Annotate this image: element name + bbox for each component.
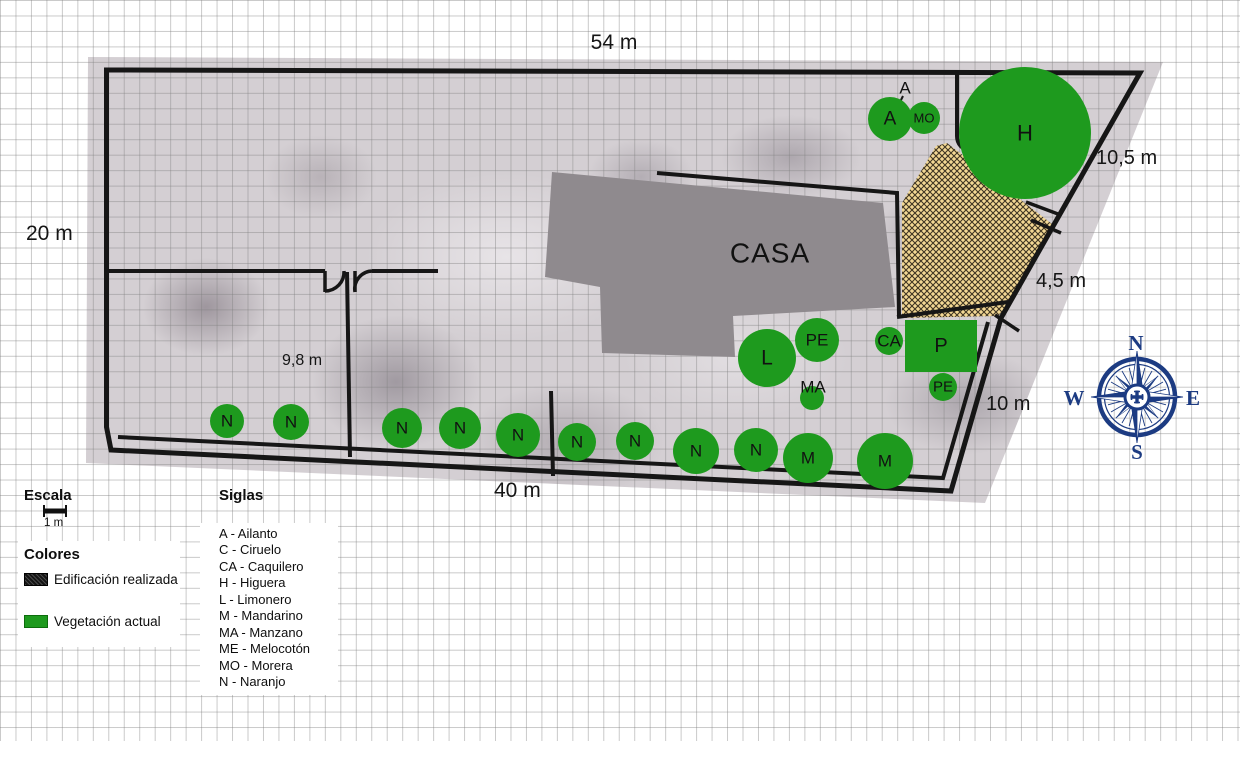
dimension-right-lower: 10 m — [986, 393, 1030, 416]
svg-text:MA: MA — [800, 378, 826, 397]
fence-vertical-mid — [551, 391, 553, 476]
compass-west-label: W — [1064, 386, 1085, 410]
svg-text:M: M — [878, 452, 892, 471]
tree-caquilero: CA — [875, 327, 903, 355]
svg-text:N: N — [454, 419, 466, 438]
house-footprint — [545, 172, 895, 357]
house-label: CASA — [730, 238, 810, 269]
compass-east-label: E — [1186, 386, 1200, 410]
tree-manzano: MA — [800, 378, 826, 411]
tree-naranjo: N — [496, 413, 540, 457]
dimension-right-upper: 10,5 m — [1096, 147, 1157, 170]
vegetation-swatch — [24, 615, 48, 628]
compass-rose-icon: N E S W — [1060, 330, 1214, 464]
gate-left-leaf — [325, 271, 344, 292]
svg-text:CA: CA — [877, 332, 901, 351]
sigla-item: N - Naranjo — [219, 674, 310, 690]
planter-p: P — [905, 320, 977, 372]
svg-text:N: N — [396, 419, 408, 438]
tree-naranjo: N — [673, 428, 719, 474]
svg-text:N: N — [571, 433, 583, 452]
siglas-title: Siglas — [219, 487, 263, 504]
compass-north-label: N — [1128, 331, 1143, 355]
sigla-item: MA - Manzano — [219, 625, 310, 641]
svg-text:N: N — [285, 413, 297, 432]
svg-text:M: M — [801, 449, 815, 468]
compass-south-label: S — [1131, 440, 1143, 464]
svg-text:MO: MO — [914, 111, 935, 126]
svg-text:N: N — [629, 432, 641, 451]
sigla-item: C - Ciruelo — [219, 542, 310, 558]
tree-naranjo: N — [734, 428, 778, 472]
dimension-interior: 9,8 m — [282, 352, 322, 370]
scale-title: Escala — [24, 487, 72, 504]
tree-limonero: L — [738, 329, 796, 387]
tree-naranjo: N — [382, 408, 422, 448]
scale-value: 1 m — [44, 517, 63, 529]
legend-item-vegetation: Vegetación actual — [24, 614, 161, 629]
garden-plan-page: { "house_label": "CASA", "dimensions": {… — [0, 0, 1240, 773]
siglas-list: A - Ailanto C - Ciruelo CA - Caquilero H… — [219, 526, 310, 691]
site-plan-drawing: CASA A A MO H L PE MA CA P PE N N — [0, 0, 1240, 773]
tree-naranjo: N — [558, 423, 596, 461]
svg-text:P: P — [934, 335, 947, 357]
legend-item-building: Edificación realizada — [24, 572, 178, 587]
tree-naranjo-row: N N N N N N N N N — [210, 404, 778, 474]
sigla-item: MO - Morera — [219, 658, 310, 674]
svg-text:N: N — [512, 426, 524, 445]
sigla-item: L - Limonero — [219, 592, 310, 608]
legend-item-label: Edificación realizada — [54, 572, 178, 587]
legend-item-label: Vegetación actual — [54, 614, 161, 629]
tree-mandarino: M — [783, 433, 833, 483]
svg-text:A: A — [884, 109, 897, 130]
dimension-right-mid: 4,5 m — [1036, 270, 1086, 293]
svg-text:L: L — [761, 347, 773, 370]
gate-right-leaf — [355, 271, 373, 292]
tree-ailanto: A — [868, 97, 912, 141]
tree-mandarino: M — [857, 433, 913, 489]
dimension-bottom: 40 m — [494, 479, 541, 503]
tree-a-marker-label: A — [899, 79, 911, 98]
svg-text:PE: PE — [933, 379, 953, 396]
tree-naranjo: N — [273, 404, 309, 440]
colors-title: Colores — [24, 546, 80, 563]
tree-morera: MO — [908, 102, 940, 134]
tree-naranjo: N — [210, 404, 244, 438]
svg-text:N: N — [690, 442, 702, 461]
tree-naranjo: N — [616, 422, 654, 460]
tree-naranjo: N — [439, 407, 481, 449]
dimension-top: 54 m — [579, 31, 649, 55]
svg-text:N: N — [221, 412, 233, 431]
svg-text:N: N — [750, 441, 762, 460]
sigla-item: CA - Caquilero — [219, 559, 310, 575]
svg-text:PE: PE — [806, 331, 829, 350]
dimension-left: 20 m — [26, 222, 73, 246]
tree-pe-upper: PE — [795, 318, 839, 362]
sigla-item: A - Ailanto — [219, 526, 310, 542]
sigla-item: M - Mandarino — [219, 608, 310, 624]
tree-higuera: H — [959, 67, 1091, 199]
tree-pe-lower: PE — [929, 373, 957, 401]
building-swatch — [24, 573, 48, 586]
sigla-item: ME - Melocotón — [219, 641, 310, 657]
sigla-item: H - Higuera — [219, 575, 310, 591]
svg-text:H: H — [1017, 121, 1033, 146]
fence-vertical-left — [347, 272, 350, 457]
